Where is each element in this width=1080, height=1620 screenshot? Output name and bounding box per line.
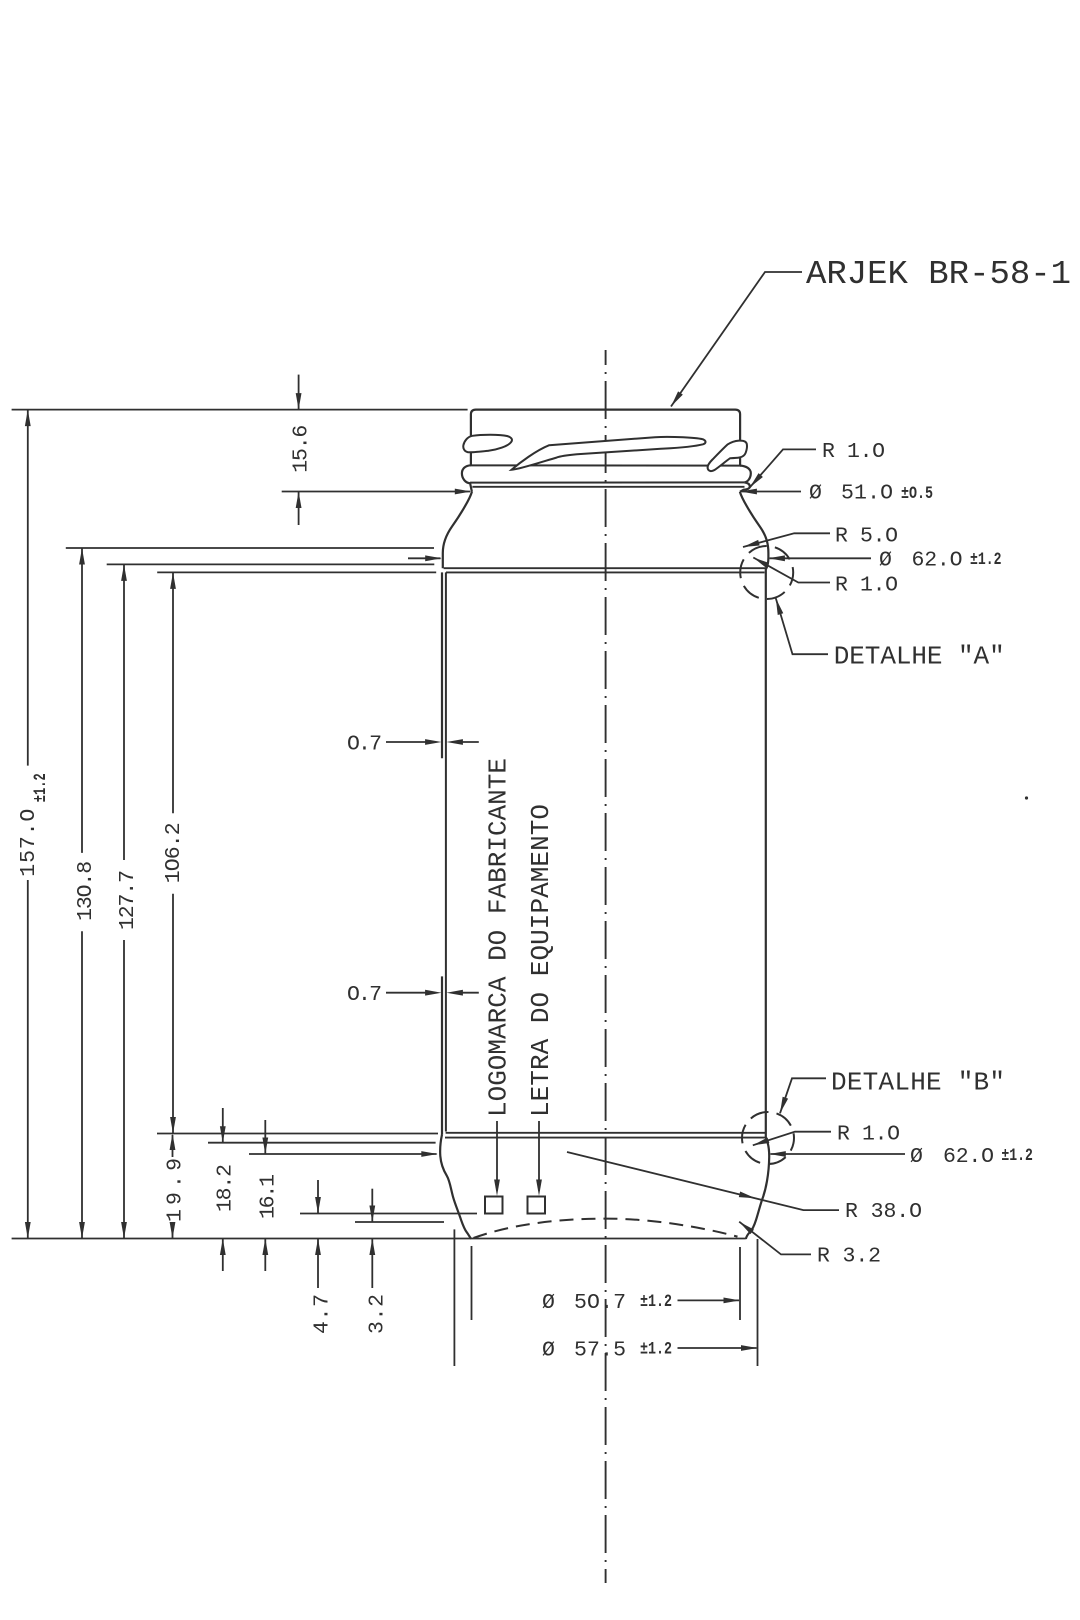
svg-text:62.O: 62.O (912, 549, 963, 573)
svg-text:Ø: Ø (910, 1145, 923, 1169)
svg-text:5O.7: 5O.7 (574, 1291, 626, 1315)
svg-text:R 38.O: R 38.O (845, 1200, 922, 1224)
svg-text:57.5: 57.5 (574, 1339, 626, 1363)
svg-text:62.O: 62.O (943, 1145, 994, 1169)
svg-text:51.O: 51.O (841, 482, 893, 506)
svg-text:LOGOMARCA DO FABRICANTE: LOGOMARCA DO FABRICANTE (484, 758, 514, 1117)
svg-text:16.1: 16.1 (256, 1174, 280, 1219)
svg-text:1O6.2: 1O6.2 (162, 822, 186, 883)
svg-text:ARJEK BR-58-1: ARJEK BR-58-1 (806, 256, 1071, 293)
svg-text:R 1.O: R 1.O (835, 574, 898, 598)
svg-text:18.2: 18.2 (214, 1164, 238, 1212)
svg-text:±1.2: ±1.2 (1001, 1146, 1033, 1166)
svg-text:15.6: 15.6 (290, 425, 314, 473)
svg-text:±1.2: ±1.2 (640, 1340, 672, 1360)
svg-text:R 3.2: R 3.2 (817, 1245, 881, 1269)
svg-text:DETALHE "A": DETALHE "A" (834, 641, 1005, 671)
svg-text:R 1.O: R 1.O (822, 440, 885, 464)
svg-text:LETRA DO EQUIPAMENTO: LETRA DO EQUIPAMENTO (526, 804, 556, 1117)
svg-text:±1.2: ±1.2 (640, 1292, 672, 1312)
svg-text:157.O: 157.O (17, 809, 41, 877)
svg-text:Ø: Ø (879, 549, 892, 573)
svg-text:O.7: O.7 (347, 733, 382, 757)
svg-text:13O.8: 13O.8 (74, 861, 98, 921)
svg-text:Ø: Ø (542, 1291, 555, 1315)
svg-text:±1.2: ±1.2 (970, 550, 1002, 570)
svg-text:DETALHE "B": DETALHE "B" (831, 1068, 1005, 1098)
svg-text:±O.5: ±O.5 (901, 484, 933, 504)
svg-text:R 1.O: R 1.O (837, 1123, 900, 1147)
svg-text:Ø: Ø (542, 1339, 555, 1363)
svg-text:Ø: Ø (809, 482, 822, 506)
svg-text:127.7: 127.7 (116, 870, 140, 930)
svg-text:4.7: 4.7 (310, 1294, 334, 1334)
svg-text:R 5.O: R 5.O (835, 525, 898, 549)
svg-text:3.2: 3.2 (365, 1294, 389, 1334)
svg-text:O.7: O.7 (347, 983, 382, 1007)
svg-text:±1.2: ±1.2 (31, 773, 51, 802)
